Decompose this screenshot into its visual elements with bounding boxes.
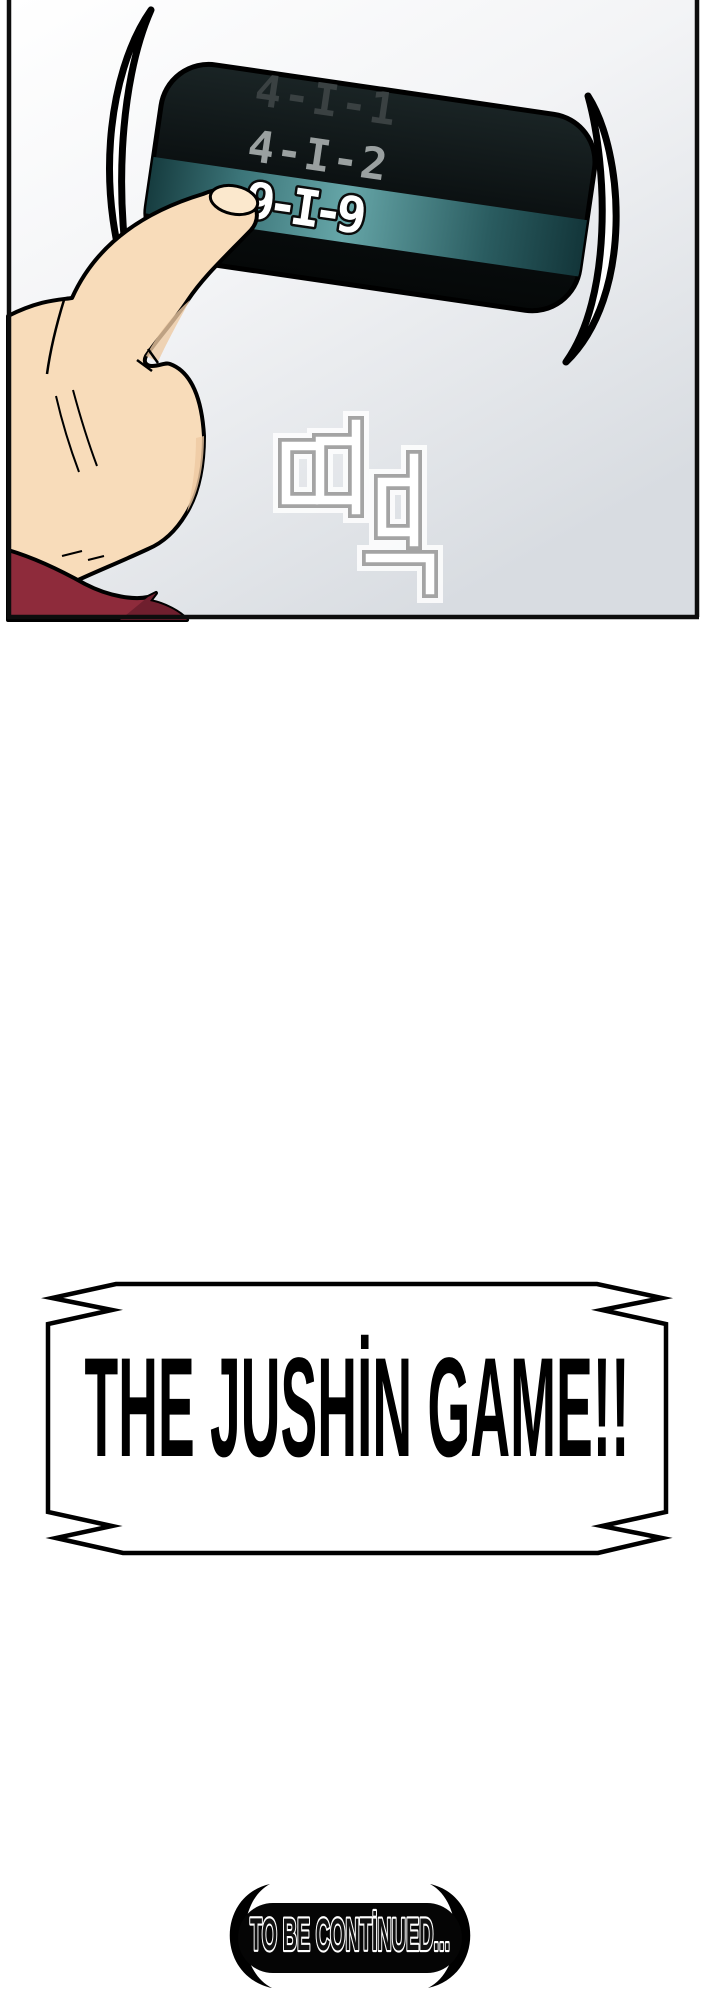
banner-title: THE JUSHİN GAME!! xyxy=(85,1328,630,1487)
webtoon-page: 4-I-1 4-I-2 9-I-9 xyxy=(0,0,704,2016)
badge-text: TO BE CONTİNUED... xyxy=(250,1910,450,1961)
comic-panel: 4-I-1 4-I-2 9-I-9 xyxy=(0,0,704,622)
continued-badge: TO BE CONTİNUED... xyxy=(0,1880,704,2000)
title-banner: THE JUSHİN GAME!! xyxy=(0,1260,704,1570)
